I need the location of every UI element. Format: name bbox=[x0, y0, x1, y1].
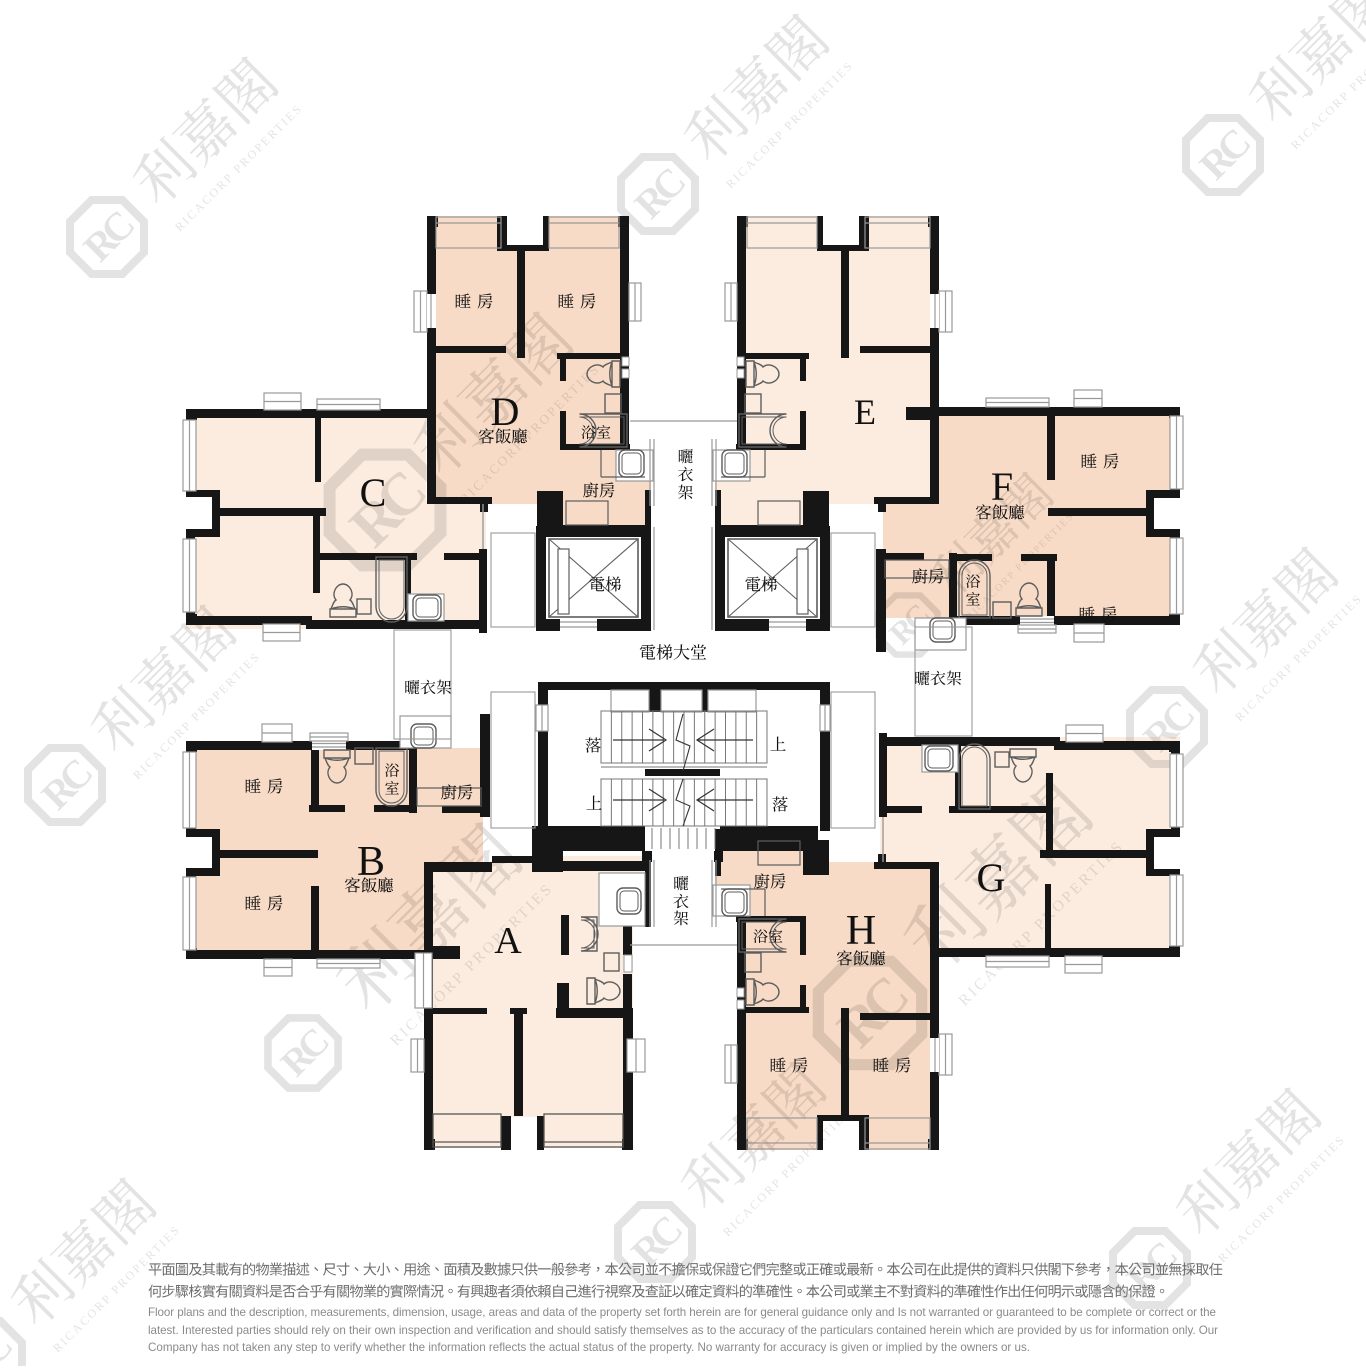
svg-text:C: C bbox=[360, 470, 387, 515]
svg-text:E: E bbox=[854, 392, 876, 432]
svg-text:F: F bbox=[991, 464, 1013, 509]
svg-text:Company has not taken any step: Company has not taken any step to verify… bbox=[148, 1341, 1030, 1354]
svg-text:D: D bbox=[491, 389, 520, 434]
svg-text:A: A bbox=[494, 920, 522, 962]
svg-text:Floor plans and the descriptio: Floor plans and the description, measure… bbox=[148, 1306, 1216, 1319]
svg-text:B: B bbox=[357, 839, 385, 885]
svg-text:latest. Interested parties sho: latest. Interested parties should rely o… bbox=[148, 1324, 1218, 1337]
svg-text:G: G bbox=[977, 855, 1006, 900]
svg-text:H: H bbox=[846, 908, 876, 954]
